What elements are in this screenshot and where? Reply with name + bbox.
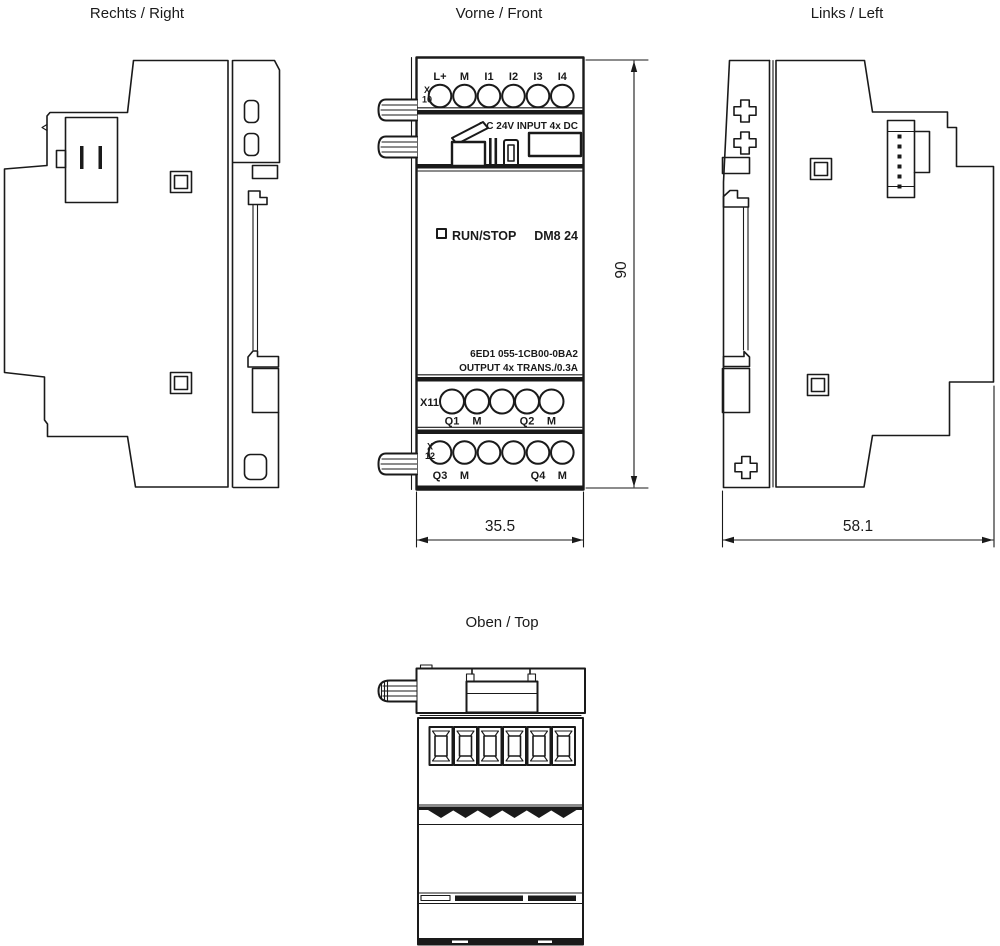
- terminal-label: Q3: [433, 470, 448, 482]
- terminal-circle: [478, 441, 501, 464]
- terminal-circle: [515, 390, 539, 414]
- left-side-view: [723, 61, 994, 488]
- terminal-circle: [453, 441, 476, 464]
- din-rail-tab: [467, 682, 538, 713]
- top-view: [379, 665, 586, 945]
- clip-hole: [245, 101, 259, 123]
- terminal-circle: [490, 390, 514, 414]
- run-stop-led: [437, 229, 446, 238]
- din-clip-strip: [723, 61, 770, 488]
- front-view-title: Vorne / Front: [456, 5, 544, 22]
- terminal-circle: [478, 85, 501, 108]
- x11-connector-label: X11: [420, 397, 439, 409]
- terminal-circle: [502, 85, 525, 108]
- tab-step: [528, 674, 536, 682]
- connector-pin: [898, 175, 902, 179]
- clip-cross-hole: [734, 132, 756, 154]
- screw-recess-inner: [175, 176, 188, 189]
- vent-band: [418, 805, 583, 825]
- clip-lower-rect: [723, 369, 750, 413]
- clip-catch: [724, 352, 750, 367]
- dimension-annotations: 90 35.5 58.1: [417, 60, 995, 547]
- top-view-title: Oben / Top: [465, 614, 538, 631]
- module-drawing: Rechts / Right Vorne / Front Links / Lef…: [0, 0, 1000, 946]
- terminal-slot: [430, 727, 453, 765]
- status-section: RUN/STOP DM8 24 6ED1 055-1CB00-0BA2 OUTP…: [437, 229, 578, 374]
- connector-slot: [80, 146, 84, 169]
- din-clip-upper: [234, 61, 280, 163]
- clip-cross-hole: [734, 100, 756, 122]
- terminal-label: I1: [484, 71, 493, 83]
- clip-band: [253, 166, 278, 179]
- lever-body: [452, 142, 485, 166]
- dimension-value: 90: [613, 261, 630, 279]
- dimension-depth: 58.1: [723, 386, 995, 547]
- technical-drawing-page: Rechts / Right Vorne / Front Links / Lef…: [0, 0, 1000, 946]
- arrowhead: [723, 537, 734, 543]
- clip-catch: [248, 351, 279, 367]
- connector-pin: [898, 185, 902, 189]
- terminal-label: M: [547, 416, 556, 428]
- terminal-slot: [552, 727, 575, 765]
- arrowhead: [572, 537, 583, 543]
- screw-recess-inner: [175, 377, 188, 390]
- release-lever: [452, 122, 488, 144]
- right-view-title: Rechts / Right: [90, 5, 185, 22]
- terminal-circle: [551, 85, 574, 108]
- section-divider: [418, 377, 583, 382]
- terminal-circle: [453, 85, 476, 108]
- screw-recess: [171, 172, 192, 193]
- din-clip-lower: [234, 413, 279, 488]
- model-label: DM8 24: [534, 229, 578, 243]
- connector-pin: [898, 155, 902, 159]
- terminal-circle: [502, 441, 525, 464]
- tab-step: [467, 674, 475, 682]
- dimension-value: 58.1: [843, 518, 873, 535]
- section-divider: [418, 110, 583, 115]
- screw-recess: [808, 375, 829, 396]
- connector-step: [915, 132, 930, 173]
- order-number: 6ED1 055-1CB00-0BA2: [470, 349, 578, 360]
- screw-recess-inner: [815, 163, 828, 176]
- clip-hole-bottom: [245, 455, 267, 480]
- label-window: [529, 133, 581, 156]
- terminal-label: M: [472, 416, 481, 428]
- connector-pin: [898, 165, 902, 169]
- terminal-circle: [540, 390, 564, 414]
- x10-connector-label: X: [424, 85, 430, 95]
- slide-slot: [504, 140, 518, 166]
- x12-connector-label: X: [427, 442, 433, 452]
- dimension-height: 90: [586, 60, 648, 488]
- terminal-label: I4: [558, 71, 568, 83]
- input-connector-section: DC 24V INPUT 4x DC: [452, 121, 581, 166]
- lever-bar: [495, 138, 498, 166]
- input-terminal-row: L+ M I1 I2 I3 I4 X 10: [422, 71, 574, 107]
- terminal-circle: [527, 441, 550, 464]
- terminal-circle: [551, 441, 574, 464]
- side-connector-block: [66, 118, 118, 203]
- led-label: RUN/STOP: [452, 229, 516, 243]
- terminal-circle: [440, 390, 464, 414]
- connector-pin: [898, 135, 902, 139]
- screw-recess: [171, 373, 192, 394]
- terminal-circle: [527, 85, 550, 108]
- din-clip-outline: [724, 61, 770, 488]
- module-body-outline: [776, 61, 994, 488]
- front-view: L+ M I1 I2 I3 I4 X 10 DC 24V INPUT 4x DC: [379, 58, 584, 490]
- slide-slot-inner: [508, 145, 514, 161]
- dimension-width: 35.5: [417, 492, 584, 547]
- top-expansion-plug: [379, 681, 417, 702]
- terminal-slot: [528, 727, 551, 765]
- clip-lower-rect: [253, 369, 279, 413]
- dimension-value: 35.5: [485, 518, 515, 535]
- terminal-slot: [503, 727, 526, 765]
- terminal-label: M: [558, 470, 567, 482]
- top-connector-section: [417, 669, 586, 714]
- arrowhead: [631, 476, 637, 487]
- connector-slot: [99, 146, 103, 169]
- output-caption: OUTPUT 4x TRANS./0.3A: [459, 363, 578, 374]
- terminal-label: I3: [533, 71, 542, 83]
- expansion-interface-connector: [888, 121, 930, 198]
- module-body-outline: [5, 61, 229, 488]
- screw-recess: [811, 159, 832, 180]
- bottom-edge-band: [418, 486, 583, 490]
- terminal-slots: [430, 727, 576, 765]
- arrowhead: [417, 537, 428, 543]
- right-side-view: [5, 61, 280, 488]
- terminal-label: Q1: [445, 416, 460, 428]
- screw-recess-inner: [812, 379, 825, 392]
- output-terminal-row-2: X 12 Q3 M Q4 M: [425, 441, 574, 482]
- clip-hook: [724, 191, 749, 208]
- left-view-title: Links / Left: [811, 5, 884, 22]
- section-divider: [418, 430, 583, 435]
- terminal-label: Q2: [520, 416, 535, 428]
- lever-bar: [489, 138, 492, 166]
- terminal-label: L+: [433, 71, 446, 83]
- clip-hook: [249, 191, 268, 205]
- input-caption: DC 24V INPUT 4x DC: [479, 121, 578, 132]
- terminal-label: I2: [509, 71, 518, 83]
- terminal-slot: [454, 727, 477, 765]
- terminal-slot: [479, 727, 502, 765]
- terminal-label: M: [460, 71, 469, 83]
- clip-band: [723, 158, 750, 174]
- terminal-circle: [429, 85, 452, 108]
- lower-seam-band: [418, 893, 583, 904]
- x10-connector-label: 10: [422, 95, 432, 105]
- terminal-circle: [465, 390, 489, 414]
- arrowhead: [631, 61, 637, 72]
- connector-pin: [898, 145, 902, 149]
- terminal-label: Q4: [531, 470, 547, 482]
- clip-hole: [245, 134, 259, 156]
- x12-connector-label: 12: [425, 451, 435, 461]
- terminal-label: M: [460, 470, 469, 482]
- bottom-edge-band: [418, 938, 583, 945]
- clip-cross-hole: [735, 457, 757, 479]
- section-divider: [418, 164, 583, 169]
- arrowhead: [982, 537, 993, 543]
- output-terminal-row-1: X11 Q1 M Q2 M: [420, 390, 564, 428]
- connector-tab: [57, 151, 66, 168]
